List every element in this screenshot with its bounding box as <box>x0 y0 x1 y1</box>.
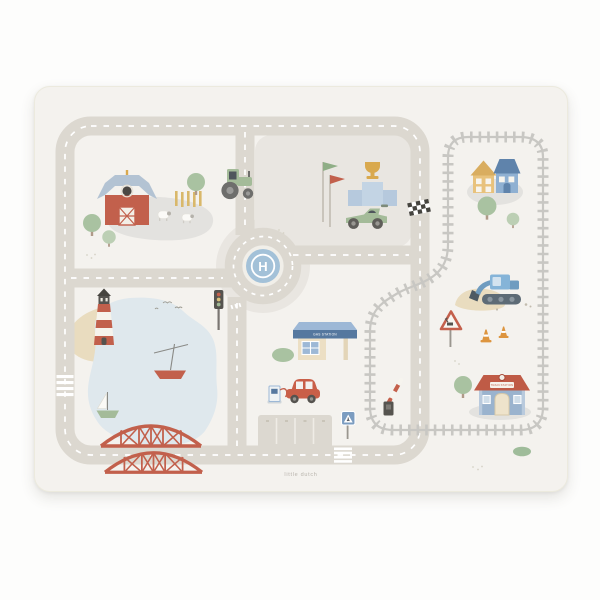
warning-sign <box>441 312 461 348</box>
lighthouse <box>94 289 114 346</box>
red-car <box>286 379 320 403</box>
barn <box>97 170 157 225</box>
tractor <box>221 169 253 199</box>
bush <box>513 447 531 457</box>
helipad: H <box>246 249 280 283</box>
playmat-artwork: H <box>35 87 567 491</box>
gas-station: GAS STATION <box>293 322 357 360</box>
helipad-letter: H <box>258 259 267 274</box>
parking-lot <box>258 415 332 448</box>
blue-house <box>494 159 521 193</box>
traffic-cone <box>499 326 509 338</box>
bush <box>272 348 294 362</box>
yellow-house <box>471 161 497 194</box>
traffic-light <box>214 290 223 330</box>
train-station: TRAIN STATION <box>474 375 530 416</box>
product-photo-background: H <box>0 0 600 600</box>
gas-station-sign: GAS STATION <box>313 333 337 337</box>
brand-watermark: little dutch <box>284 472 317 478</box>
railroad-crossing-barrier <box>384 377 404 415</box>
trophy <box>365 162 380 179</box>
pedestrian-sign <box>342 412 356 440</box>
train-station-sign: TRAIN STATION <box>491 383 514 387</box>
fuel-pump <box>268 386 287 404</box>
traffic-cone <box>481 330 492 343</box>
station-tree <box>454 376 472 398</box>
playmat: H <box>34 86 568 492</box>
